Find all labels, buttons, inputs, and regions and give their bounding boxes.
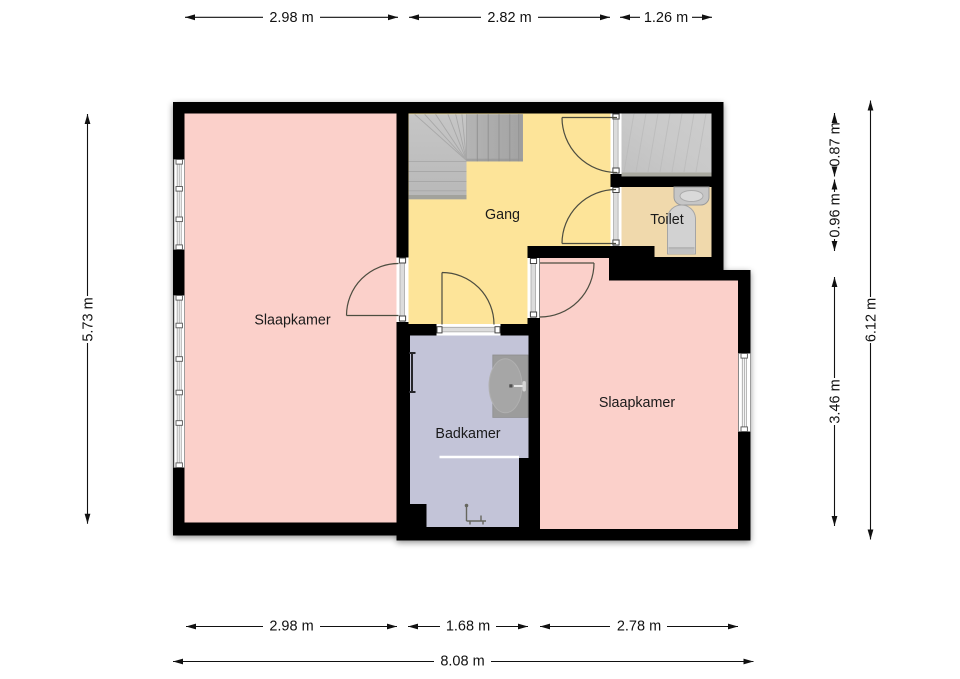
svg-text:1.26 m: 1.26 m: [644, 10, 688, 26]
svg-text:0.87 m: 0.87 m: [828, 122, 844, 166]
svg-text:2.98 m: 2.98 m: [269, 10, 313, 26]
svg-text:Slaapkamer: Slaapkamer: [254, 313, 331, 329]
svg-text:Gang: Gang: [485, 207, 520, 223]
svg-text:Badkamer: Badkamer: [435, 426, 500, 442]
svg-text:2.78 m: 2.78 m: [617, 619, 661, 635]
svg-text:2.82 m: 2.82 m: [487, 10, 531, 26]
svg-text:2.98 m: 2.98 m: [269, 619, 313, 635]
svg-text:6.12 m: 6.12 m: [864, 298, 880, 342]
svg-text:8.08 m: 8.08 m: [440, 654, 484, 670]
svg-text:0.96 m: 0.96 m: [828, 193, 844, 237]
svg-text:1.68 m: 1.68 m: [446, 619, 490, 635]
svg-text:3.46 m: 3.46 m: [828, 379, 844, 423]
svg-text:Toilet: Toilet: [650, 212, 683, 228]
svg-text:5.73 m: 5.73 m: [81, 297, 97, 341]
svg-text:Slaapkamer: Slaapkamer: [599, 395, 676, 411]
